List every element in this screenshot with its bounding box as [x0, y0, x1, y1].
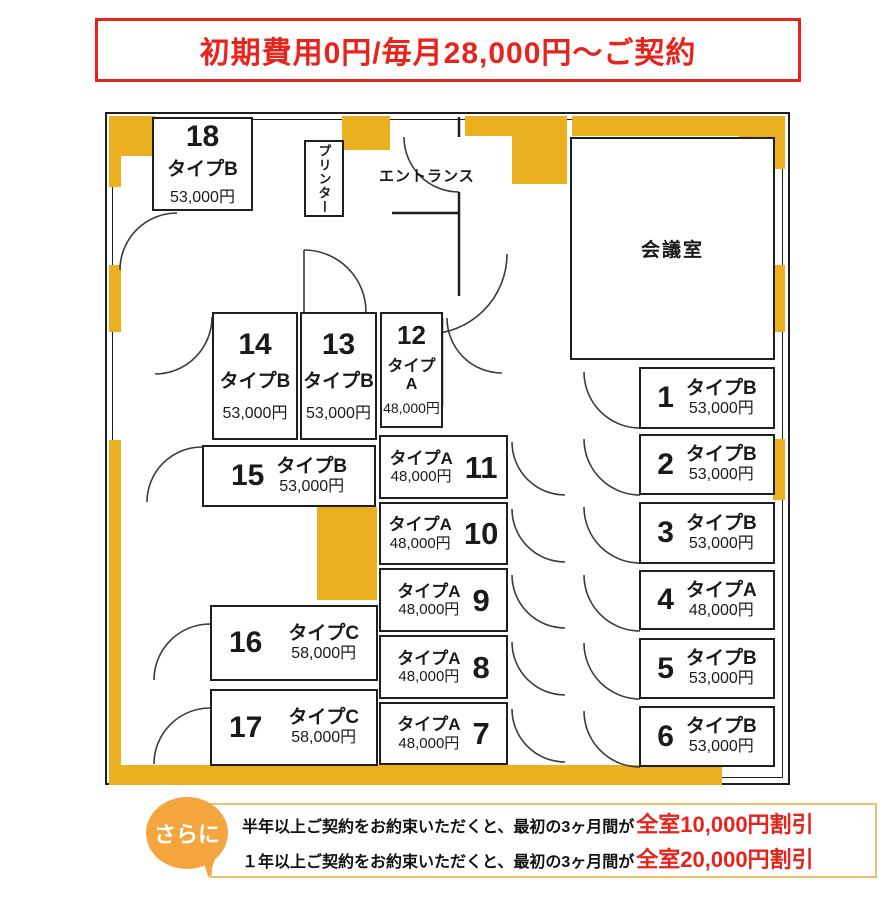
promo-highlight: 全室10,000円割引 [636, 807, 813, 839]
door-arc-room7 [512, 709, 565, 762]
meeting-room: 会議室 [570, 137, 775, 360]
door-arc-room10 [512, 509, 565, 562]
room-4: 4 タイプA48,000円 [639, 570, 775, 630]
room-15: 15 タイプB53,000円 [202, 445, 376, 507]
door-arc-room1 [584, 372, 640, 428]
door-arc-room11 [512, 442, 565, 495]
printer-closet: プリンター [304, 140, 344, 217]
room-8: タイプA48,000円 8 [379, 635, 508, 699]
promo-line-1: 半年以上ご契約をお約束いただくと、最初の3ヶ月間が 全室10,000円割引 [242, 807, 875, 839]
room-type: タイプA [382, 352, 441, 394]
room-type: タイプB [686, 648, 757, 670]
room-17: 17 タイプC58,000円 [210, 689, 378, 766]
room-number: 17 [229, 713, 262, 743]
door-arc-room15 [147, 447, 202, 502]
room-number: 14 [238, 330, 271, 360]
room-price: 53,000円 [170, 183, 235, 207]
room-price: 53,000円 [686, 738, 757, 756]
room-type: タイプA [686, 580, 757, 602]
room-type: タイプB [686, 444, 757, 466]
room-12: 12 タイプA 48,000円 [380, 312, 443, 428]
door-arc-room17 [154, 708, 210, 764]
door-arc-room5 [584, 643, 640, 699]
door-arc-corridor [304, 250, 366, 312]
promo-highlight: 全室20,000円割引 [636, 842, 813, 874]
room-type: タイプA [397, 715, 460, 735]
sarani-badge: さらに [146, 797, 228, 869]
floor-plan: 会議室 プリンター エントランス 18 タイプB 53,000円 14 タイプB… [105, 112, 790, 785]
room-type: タイプB [276, 456, 347, 478]
room-price: 58,000円 [288, 645, 359, 663]
room-9: タイプA48,000円 9 [379, 568, 508, 632]
entrance-label: エントランス [379, 165, 475, 186]
room-price: 58,000円 [288, 729, 359, 747]
door-arc-room9 [512, 575, 565, 628]
door-arc-room12 [447, 318, 502, 373]
room-10: タイプA48,000円 10 [379, 502, 508, 565]
room-price: 53,000円 [686, 670, 757, 688]
room-number: 1 [657, 383, 674, 413]
room-type: タイプA [397, 582, 460, 602]
room-type: タイプA [397, 649, 460, 669]
room-number: 13 [322, 330, 355, 360]
room-number: 4 [657, 585, 674, 615]
room-price: 48,000円 [397, 601, 460, 618]
room-number: 12 [397, 322, 426, 348]
room-type: タイプC [288, 707, 359, 729]
room-price: 53,000円 [306, 399, 371, 423]
door-arc-room4 [584, 575, 640, 631]
price-banner: 初期費用0円/毎月28,000円〜ご契約 [95, 18, 801, 82]
room-price: 48,000円 [397, 668, 460, 685]
room-price: 53,000円 [686, 466, 757, 484]
promo-text: １年以上ご契約をお約束いただくと、最初の3ヶ月間が [242, 848, 634, 872]
promo-text: 半年以上ご契約をお約束いただくと、最初の3ヶ月間が [242, 813, 634, 837]
room-price: 48,000円 [686, 602, 757, 620]
room-13: 13 タイプB 53,000円 [300, 312, 377, 440]
room-price: 48,000円 [397, 735, 460, 752]
room-type: タイプA [389, 449, 452, 469]
room-number: 6 [657, 722, 674, 752]
promo-line-2: １年以上ご契約をお約束いただくと、最初の3ヶ月間が 全室20,000円割引 [242, 842, 875, 874]
door-arc-room8 [512, 642, 565, 695]
room-type: タイプB [167, 154, 238, 181]
door-arc-room2 [584, 439, 640, 495]
room-number: 8 [473, 652, 490, 683]
door-arc-room16 [154, 624, 210, 680]
room-number: 9 [473, 585, 490, 616]
room-5: 5 タイプB53,000円 [639, 638, 775, 699]
room-18: 18 タイプB 53,000円 [152, 117, 253, 211]
room-number: 5 [657, 654, 674, 684]
room-number: 3 [657, 518, 674, 548]
sarani-badge-text: さらに [154, 817, 220, 849]
room-type: タイプB [303, 366, 374, 393]
printer-label: プリンター [315, 144, 334, 214]
room-11: タイプA48,000円 11 [379, 435, 508, 499]
discount-promo-box: 半年以上ご契約をお約束いただくと、最初の3ヶ月間が 全室10,000円割引 １年… [210, 803, 877, 878]
room-number: 15 [231, 461, 264, 491]
room-16: 16 タイプC58,000円 [210, 605, 378, 681]
room-price: 48,000円 [389, 468, 452, 485]
room-number: 2 [657, 450, 674, 480]
room-type: タイプB [686, 716, 757, 738]
room-1: 1 タイプB53,000円 [639, 367, 775, 429]
room-price: 53,000円 [276, 478, 347, 496]
room-3: 3 タイプB53,000円 [639, 502, 775, 564]
room-7: タイプA48,000円 7 [379, 702, 508, 765]
room-type: タイプB [686, 513, 757, 535]
room-type: タイプB [220, 366, 291, 393]
room-price: 53,000円 [686, 535, 757, 553]
room-price: 48,000円 [389, 535, 452, 552]
room-number: 18 [186, 122, 219, 152]
door-arc-room6 [584, 711, 640, 767]
room-number: 11 [465, 452, 498, 483]
door-arc-room18 [120, 213, 177, 270]
room-price: 48,000円 [383, 398, 440, 418]
room-type: タイプA [389, 515, 452, 535]
room-14: 14 タイプB 53,000円 [212, 312, 298, 440]
room-price: 53,000円 [223, 399, 288, 423]
room-type: タイプB [686, 378, 757, 400]
price-banner-text: 初期費用0円/毎月28,000円〜ご契約 [200, 28, 697, 72]
room-number: 7 [473, 718, 490, 749]
room-2: 2 タイプB53,000円 [639, 434, 775, 495]
door-arc-room14 [155, 317, 212, 374]
room-number: 16 [229, 628, 262, 658]
room-type: タイプC [288, 623, 359, 645]
meeting-room-label: 会議室 [641, 235, 704, 262]
room-number: 10 [464, 518, 498, 549]
room-price: 53,000円 [686, 400, 757, 418]
door-arc-room3 [584, 507, 640, 563]
room-6: 6 タイプB53,000円 [639, 706, 775, 767]
